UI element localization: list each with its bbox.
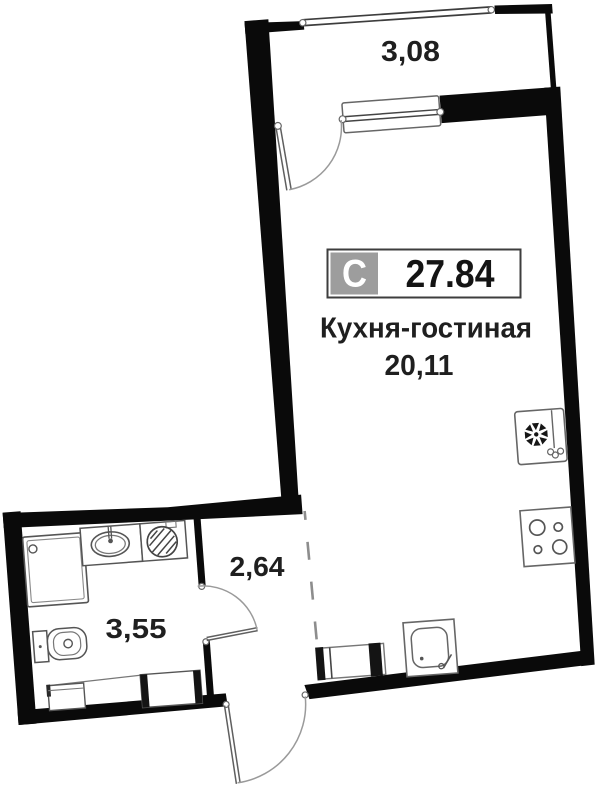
svg-text:3,55: 3,55: [106, 613, 167, 644]
svg-text:Кухня-гостиная: Кухня-гостиная: [320, 313, 532, 345]
svg-text:3,08: 3,08: [381, 36, 440, 68]
svg-text:20,11: 20,11: [385, 350, 454, 382]
svg-text:2,64: 2,64: [230, 551, 285, 582]
svg-text:С: С: [342, 253, 367, 296]
svg-text:27.84: 27.84: [406, 253, 496, 296]
